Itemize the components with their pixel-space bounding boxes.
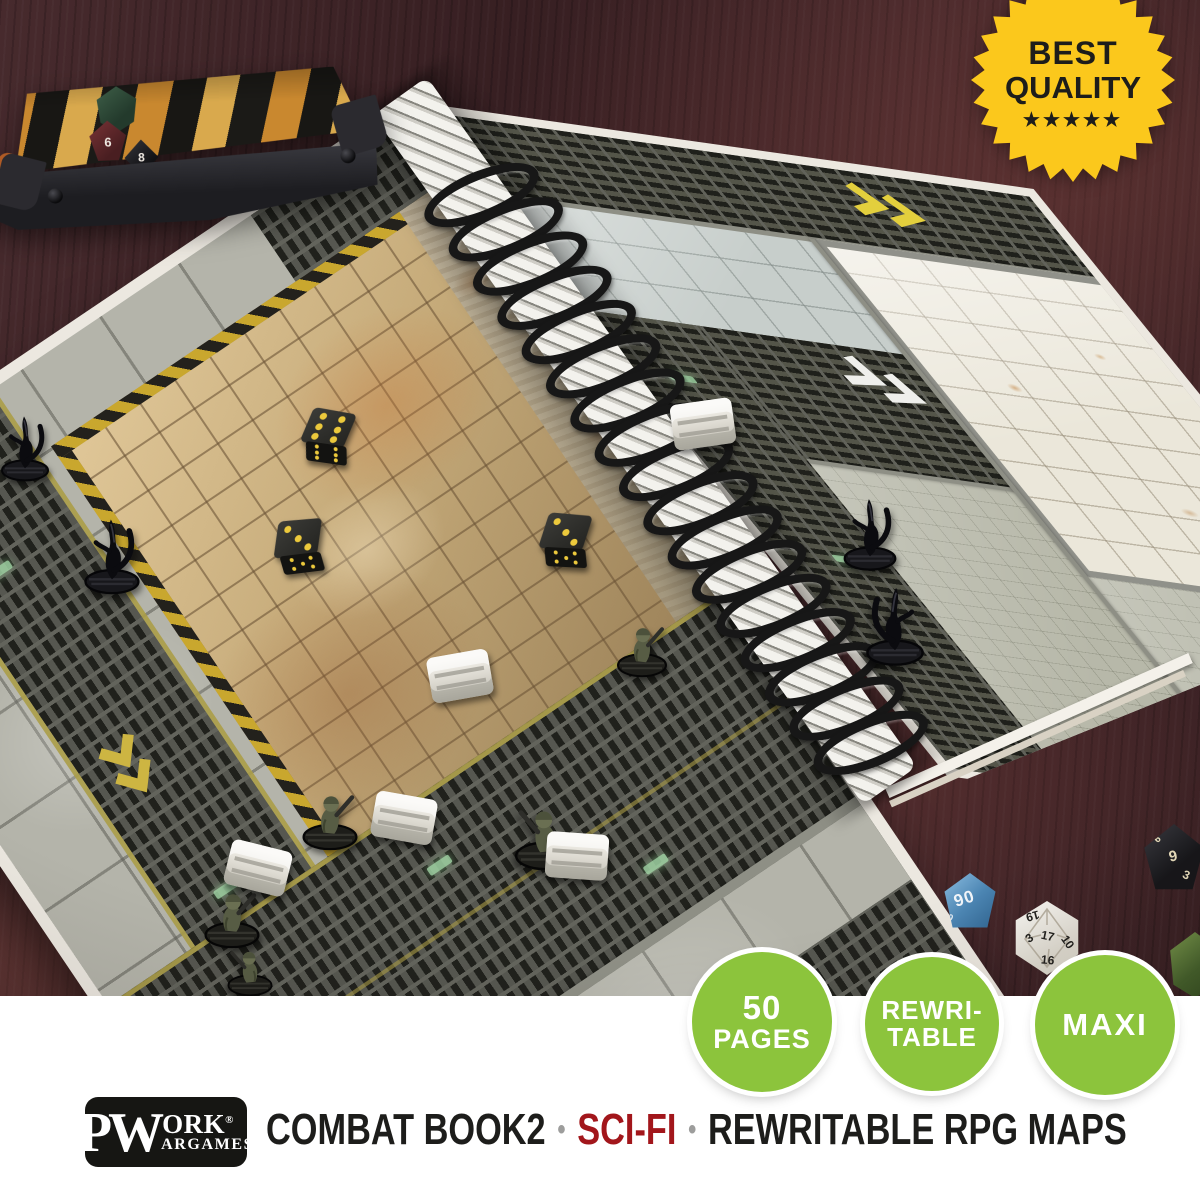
logo-pw: PW	[78, 1108, 160, 1158]
ribbon-50-pages: 50 PAGES	[692, 952, 832, 1092]
tagline-segment: REWRITABLE RPG MAPS	[708, 1105, 1127, 1155]
ribbon-text: 50	[743, 991, 782, 1025]
alien-miniature	[75, 513, 149, 602]
barricade-token	[669, 397, 737, 451]
best-quality-badge: BEST QUALITY ★★★★★	[967, 0, 1179, 186]
ribbon-text: TABLE	[887, 1024, 977, 1051]
logo-argames: ARGAMES	[161, 1137, 254, 1153]
ribbon-text: MAXI	[1062, 1009, 1148, 1041]
tagline-separator-dot: •	[557, 1113, 565, 1147]
tagline-segment: SCI-FI	[577, 1105, 676, 1155]
pwork-wargames-logo: PW ORK® ARGAMES	[85, 1097, 247, 1167]
badge-stars: ★★★★★	[1023, 109, 1123, 132]
soldier-miniature	[221, 937, 279, 996]
tagline: COMBAT BOOK2•SCI-FI•REWRITABLE RPG MAPS	[266, 1106, 1127, 1154]
black-d6-die	[274, 517, 326, 578]
black-d12-die: 9 3 6	[1143, 824, 1200, 892]
black-d6-die	[301, 407, 354, 469]
dice-tray: 6 8	[0, 55, 379, 230]
soldier-miniature	[295, 778, 365, 856]
ribbon-text: PAGES	[713, 1025, 811, 1053]
logo-ork: ORK®	[162, 1112, 254, 1136]
ribbon-maxi: MAXI	[1035, 955, 1175, 1095]
alien-miniature	[857, 581, 934, 673]
black-d6-die	[542, 513, 591, 571]
barricade-token	[544, 831, 609, 881]
tagline-segment: COMBAT BOOK2	[266, 1105, 546, 1155]
badge-line1: BEST	[1028, 35, 1117, 72]
tagline-separator-dot: •	[688, 1113, 696, 1147]
ribbon-text: REWRI-	[881, 997, 982, 1024]
alien-miniature	[835, 493, 905, 578]
ribbon-rewritable: REWRI- TABLE	[865, 957, 999, 1091]
green-d20-die	[1168, 932, 1200, 996]
product-image: 6 8 90 0 17 10 3 16 19 9	[0, 0, 1200, 1200]
badge-line2: QUALITY	[1005, 70, 1141, 106]
alien-miniature	[0, 410, 57, 487]
footer-band: PW ORK® ARGAMES COMBAT BOOK2•SCI-FI•REWR…	[0, 996, 1200, 1200]
soldier-miniature	[610, 611, 674, 682]
